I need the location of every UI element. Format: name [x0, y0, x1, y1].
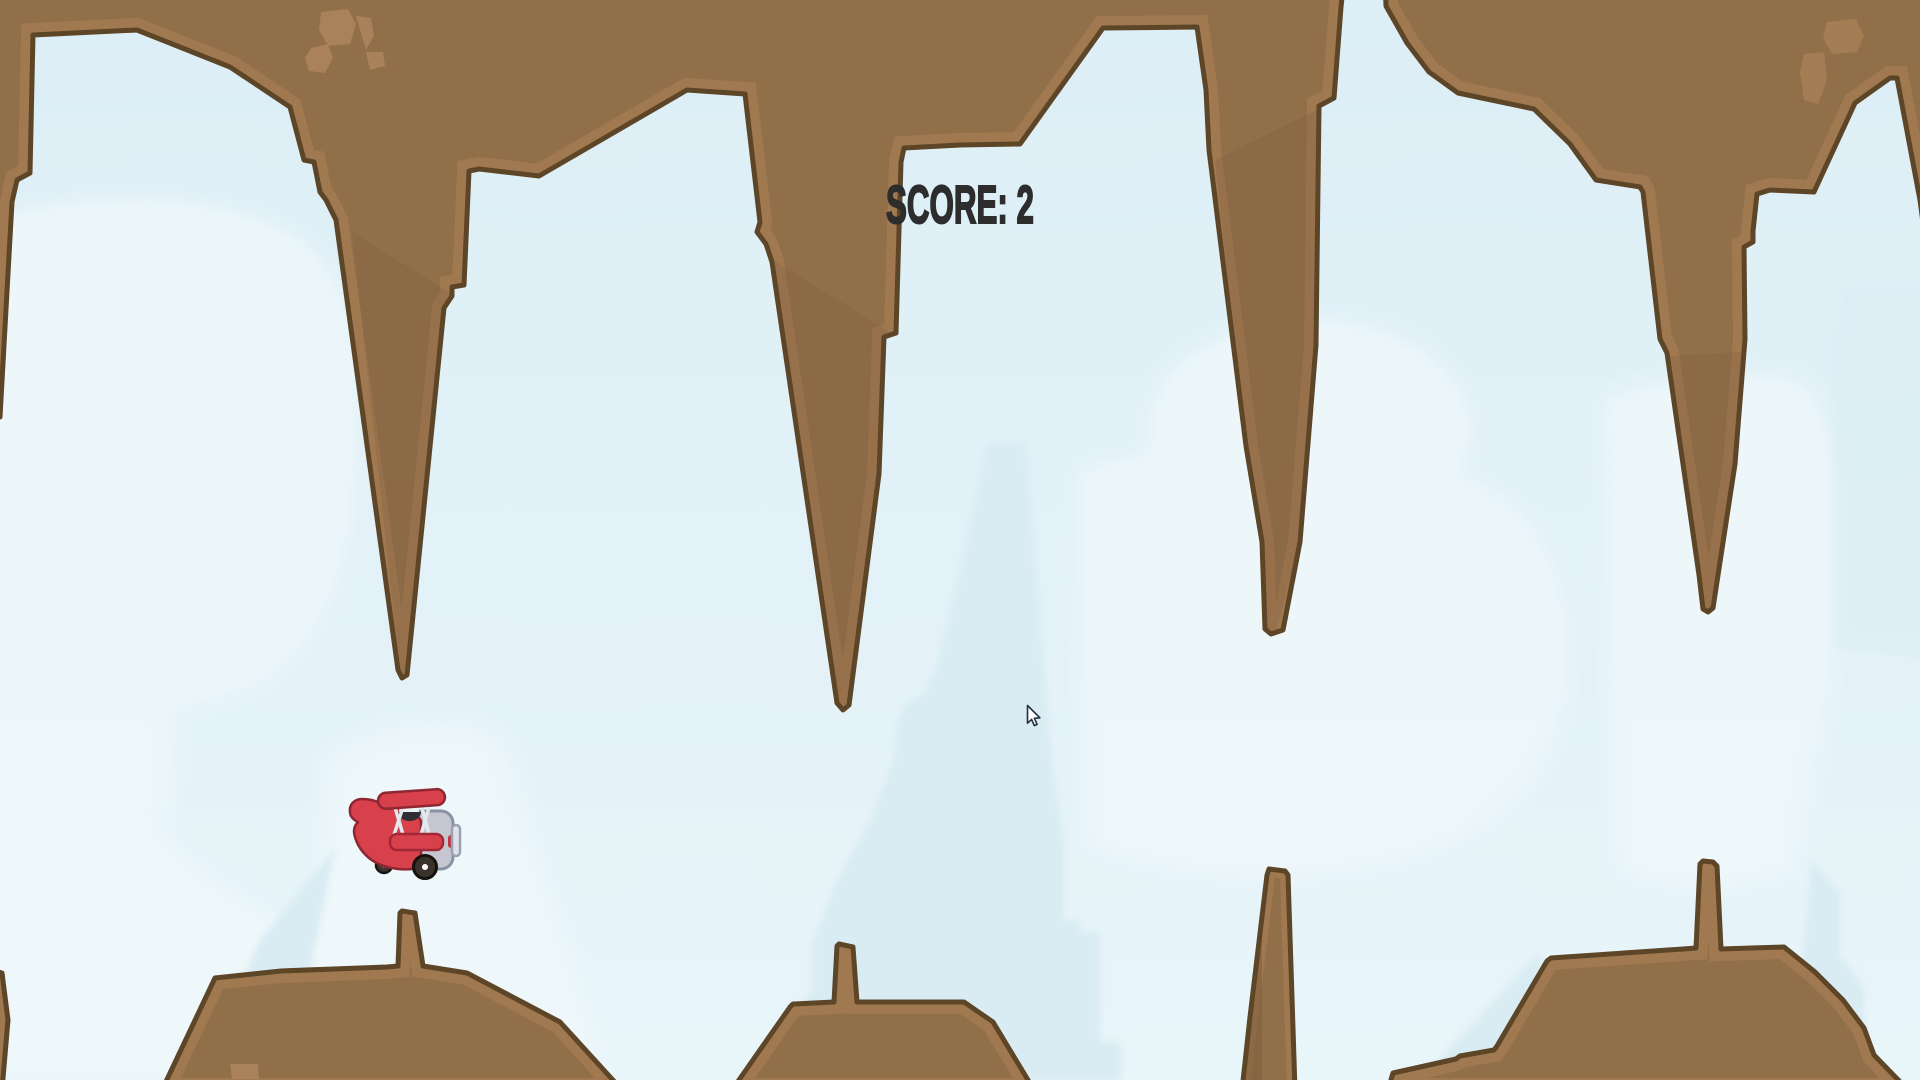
svg-text:SCORE: 2: SCORE: 2: [886, 175, 1034, 235]
